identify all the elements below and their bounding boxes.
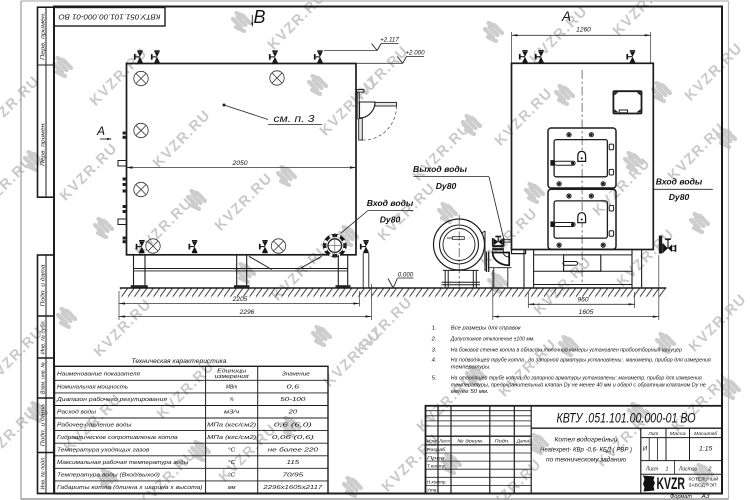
svg-text:KVZR.RU: KVZR.RU	[265, 0, 329, 53]
svg-text:МВт: МВт	[226, 385, 238, 391]
svg-text:Значение: Значение	[282, 371, 311, 377]
svg-text:измерения: измерения	[215, 374, 249, 380]
svg-text:Формат: Формат	[670, 494, 692, 500]
svg-text:м3/ч: м3/ч	[224, 410, 239, 416]
svg-text:KVZR.RU: KVZR.RU	[91, 296, 155, 360]
svg-text:Н.контр.: Н.контр.	[427, 480, 447, 486]
svg-text:5.: 5.	[432, 376, 437, 382]
svg-text:И: И	[643, 446, 648, 453]
svg-text:KVZR.RU: KVZR.RU	[150, 107, 214, 171]
svg-text:мм: мм	[228, 485, 236, 491]
svg-text:Подп. и дата: Подп. и дата	[40, 404, 46, 446]
svg-text:менее 50 мм.: менее 50 мм.	[451, 389, 489, 395]
svg-text:Номинальная мощность: Номинальная мощность	[57, 385, 128, 391]
svg-text:0,6 (6,0): 0,6 (6,0)	[274, 422, 312, 428]
svg-text:2296: 2296	[239, 309, 255, 316]
svg-text:А: А	[96, 124, 105, 138]
svg-text:А3: А3	[700, 494, 710, 500]
svg-text:°С: °С	[228, 447, 237, 453]
svg-text:°С: °С	[228, 460, 237, 466]
svg-text:Вход воды: Вход воды	[656, 177, 703, 187]
svg-text:0.000: 0.000	[398, 272, 414, 279]
svg-text:Утв.: Утв.	[427, 488, 438, 494]
svg-text:КВТУ .051.101.00.000-01 ВО: КВТУ .051.101.00.000-01 ВО	[557, 411, 696, 426]
svg-text:KVZR: KVZR	[657, 475, 686, 493]
svg-text:KVZR.RU: KVZR.RU	[348, 43, 412, 107]
svg-text:Максимальная рабочая температу: Максимальная рабочая температура воды	[57, 460, 189, 466]
svg-text:KVZR.RU: KVZR.RU	[686, 291, 750, 355]
svg-text:Техническая характеристика: Техническая характеристика	[132, 358, 227, 365]
svg-text:На отводящей трубе котла ,до з: На отводящей трубе котла ,до запорной ар…	[451, 375, 702, 382]
svg-text:2: 2	[708, 467, 712, 473]
svg-text:960: 960	[577, 297, 588, 304]
svg-text:Dу80: Dу80	[380, 215, 401, 225]
svg-text:Все размеры для справок: Все размеры для справок	[451, 326, 521, 332]
svg-text:Взам. инв. №: Взам. инв. №	[40, 362, 46, 394]
svg-text:Инв. № дубл.: Инв. № дубл.	[40, 320, 46, 354]
svg-text:2296х1605х2117: 2296х1605х2117	[262, 485, 323, 491]
svg-text:Т.контр.: Т.контр.	[427, 463, 447, 469]
svg-text:KVZR.RU: KVZR.RU	[496, 336, 560, 400]
svg-text:Изм: Изм	[427, 438, 438, 444]
svg-text:температуры.: температуры.	[451, 365, 491, 371]
svg-text:1605: 1605	[579, 309, 594, 316]
svg-text:70/95: 70/95	[282, 473, 304, 479]
svg-text:не более 220: не более 220	[268, 447, 319, 453]
svg-text:KVZR.RU: KVZR.RU	[212, 170, 276, 234]
svg-text:KVZR.RU: KVZR.RU	[154, 358, 218, 422]
svg-text:температуры, предохранительный: температуры, предохранительный клапан Dу…	[451, 381, 707, 388]
svg-text:Выход воды: Выход воды	[413, 164, 468, 174]
svg-text:ЗАВОД РЭП: ЗАВОД РЭП	[689, 483, 717, 488]
svg-text:Масштаб: Масштаб	[694, 431, 717, 437]
svg-text:Подп.: Подп.	[495, 438, 510, 444]
svg-text:3.: 3.	[432, 348, 437, 354]
svg-text:по техническому заданию: по техническому заданию	[546, 456, 626, 464]
svg-text:см. п. 3: см. п. 3	[274, 113, 315, 125]
svg-text:%: %	[230, 397, 234, 403]
svg-text:115: 115	[287, 460, 301, 466]
svg-text:Гидравлическое сопротивление к: Гидравлическое сопротивление котла	[57, 435, 179, 441]
svg-text:МПа (кгс/см2): МПа (кгс/см2)	[207, 422, 256, 428]
svg-text:KVZR.RU: KVZR.RU	[375, 180, 439, 244]
svg-text:KVZR.RU: KVZR.RU	[87, 45, 151, 109]
svg-text:КВТУ.051.101.00.000-01 ВО: КВТУ.051.101.00.000-01 ВО	[58, 12, 161, 19]
svg-text:Лит: Лит	[647, 431, 658, 437]
svg-text:0,6: 0,6	[287, 385, 301, 391]
svg-text:2.: 2.	[431, 337, 437, 343]
svg-text:Dу80: Dу80	[436, 181, 457, 191]
svg-text:На боковой стенке котла в обла: На боковой стенке котла в области топочн…	[451, 347, 683, 354]
svg-text:Температура воды (Вход/выход): Температура воды (Вход/выход)	[57, 473, 160, 479]
svg-text:KVZR.RU: KVZR.RU	[682, 40, 746, 104]
svg-text:Heatexpert- КВр -0,6- КБД ( РВ: Heatexpert- КВр -0,6- КБД ( РВР )	[540, 447, 632, 454]
svg-text:2205: 2205	[232, 296, 248, 303]
svg-text:°С: °С	[228, 473, 237, 479]
svg-text:1:15: 1:15	[699, 446, 712, 453]
svg-text:0,06 (0,6): 0,06 (0,6)	[272, 435, 314, 441]
svg-text:Подп. и дата: Подп. и дата	[40, 264, 46, 306]
svg-text:+2.117: +2.117	[380, 37, 399, 44]
svg-text:KVZR.RU: KVZR.RU	[352, 294, 416, 358]
svg-text:2050: 2050	[231, 160, 247, 167]
svg-text:Перв. примен.: Перв. примен.	[40, 12, 46, 60]
svg-text:А: А	[561, 9, 571, 24]
svg-text:KVZR.RU: KVZR.RU	[57, 140, 121, 204]
svg-text:50-100: 50-100	[280, 397, 306, 403]
svg-text:4.: 4.	[432, 358, 437, 364]
svg-text:KVZR.RU: KVZR.RU	[492, 85, 556, 149]
svg-text:Масса: Масса	[670, 431, 686, 437]
svg-text:КОТЕЛЬНЫЙ: КОТЕЛЬНЫЙ	[689, 475, 719, 482]
svg-text:+2.000: +2.000	[405, 49, 425, 56]
svg-text:1.: 1.	[432, 326, 437, 332]
svg-text:Листов: Листов	[678, 467, 697, 473]
svg-text:Расход воды: Расход воды	[57, 410, 97, 416]
svg-text:Диапазон рабочего регулировани: Диапазон рабочего регулирования	[56, 397, 167, 403]
svg-text:Лист: Лист	[438, 438, 449, 444]
svg-text:Рабочее давление воды: Рабочее давление воды	[57, 422, 132, 428]
svg-text:Допустимое отклонение ±100 мм: Допустимое отклонение ±100 мм.	[450, 337, 535, 343]
svg-text:Габариты котла (длинна х ширин: Габариты котла (длинна х ширина х высота…	[57, 485, 203, 491]
svg-text:Дата: Дата	[516, 438, 529, 444]
svg-text:1: 1	[666, 467, 669, 473]
svg-text:Котел водогрейный: Котел водогрейный	[555, 436, 618, 444]
svg-text:На подводящей трубе котла ,: На подводящей трубе котла , до запорной …	[451, 357, 711, 364]
svg-text:KVZR.RU: KVZR.RU	[590, 155, 654, 219]
svg-text:Наименование показателя: Наименование показателя	[57, 371, 140, 377]
svg-text:Dу80: Dу80	[669, 192, 690, 202]
svg-text:20: 20	[287, 410, 298, 416]
svg-text:1260: 1260	[576, 27, 591, 34]
svg-text:Перв. примен.: Перв. примен.	[40, 122, 46, 166]
svg-text:KVZR.RU: KVZR.RU	[614, 226, 678, 290]
svg-text:Температура уходящих газов: Температура уходящих газов	[57, 447, 149, 453]
svg-text:МПа (кгс/см2): МПа (кгс/см2)	[207, 435, 256, 441]
svg-text:№ докум.: № докум.	[457, 438, 483, 444]
svg-text:Разраб.: Разраб.	[427, 447, 447, 453]
svg-text:В: В	[253, 7, 265, 27]
svg-text:Пров.: Пров.	[427, 455, 447, 461]
svg-text:Лист: Лист	[645, 467, 659, 473]
svg-text:Вход воды: Вход воды	[367, 198, 414, 208]
svg-text:Инв. № подл.: Инв. № подл.	[40, 457, 46, 490]
